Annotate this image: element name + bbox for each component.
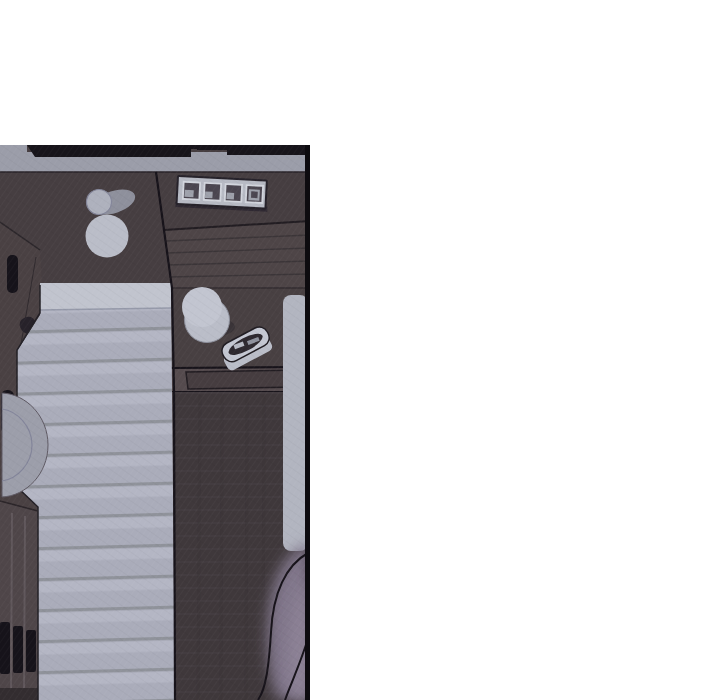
texture-overlay-dark [0,145,310,700]
comic-panel [0,145,310,700]
comic-page [0,0,720,700]
room-scene [0,145,310,700]
panel-right-border [305,145,310,700]
